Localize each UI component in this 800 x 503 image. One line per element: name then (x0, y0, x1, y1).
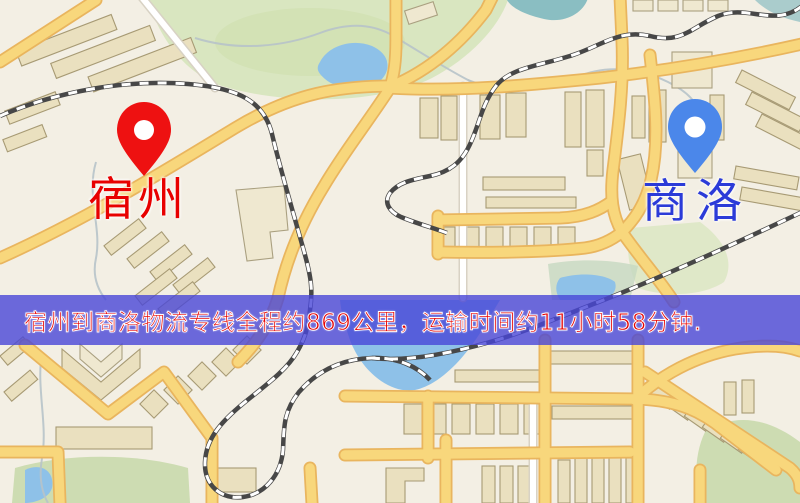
origin-pin-hole (134, 120, 154, 140)
logistics-route-map: 宿州 商洛 宿州到商洛物流专线全程约869公里，运输时间约11小时58分钟. (0, 0, 800, 503)
origin-city-label: 宿州 (88, 176, 188, 222)
route-info-text: 宿州到商洛物流专线全程约869公里，运输时间约11小时58分钟. (24, 303, 702, 337)
destination-pin-hole (685, 117, 706, 138)
route-info-banner: 宿州到商洛物流专线全程约869公里，运输时间约11小时58分钟. (0, 295, 800, 345)
map-canvas (0, 0, 800, 503)
destination-city-label: 商洛 (642, 178, 750, 224)
